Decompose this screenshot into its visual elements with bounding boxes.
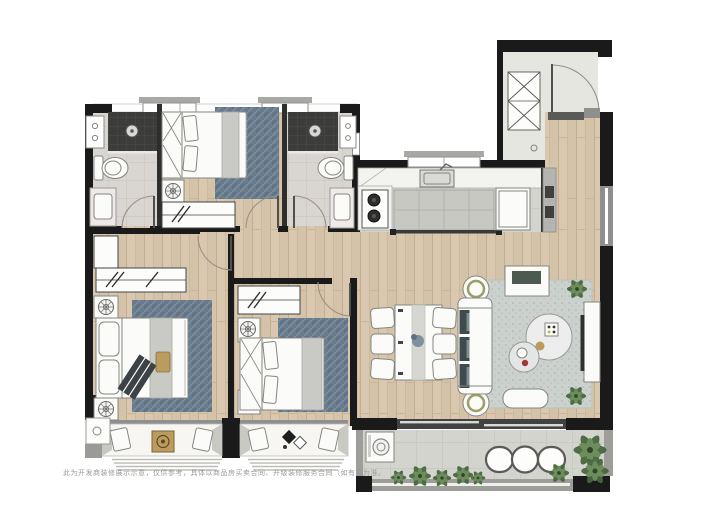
bedroom-2-wardrobe <box>238 286 300 314</box>
bedroom-3-bed <box>162 112 246 178</box>
cushion <box>110 427 131 451</box>
balcony-sliding-door <box>397 419 566 429</box>
toilet-1 <box>94 156 128 180</box>
master-bed <box>96 318 188 398</box>
bedroom-2-bed <box>240 338 324 410</box>
built-in-oven-icon <box>545 206 554 218</box>
cushion <box>318 428 339 452</box>
shoe-closet <box>508 72 540 130</box>
tv <box>581 315 585 371</box>
dining-chair <box>370 307 394 329</box>
pillow <box>183 146 198 172</box>
balcony-poufs <box>486 447 565 473</box>
disclaimer-text: 此为开发商装修展示示意，仅供参考，具体以商品房买卖合同、升级装修服务合同（如有）… <box>63 468 386 478</box>
built-in-oven-icon <box>545 186 554 198</box>
bench-bottom <box>503 389 548 408</box>
master-nightstand-top <box>94 296 118 318</box>
vanity-2 <box>330 188 354 228</box>
pillow <box>263 341 279 369</box>
bathroom-1-window <box>86 116 104 148</box>
dining-chair <box>432 358 456 380</box>
cushion <box>192 428 213 452</box>
master-nightstand-bottom <box>94 398 118 420</box>
tall-cabinet <box>541 168 556 232</box>
side-table <box>509 342 539 372</box>
toilet-2 <box>318 156 353 180</box>
bed-pillow-gold <box>156 352 170 372</box>
pouf <box>486 447 513 472</box>
bedroom-3-nightstand <box>162 180 184 202</box>
washing-machine <box>366 432 394 462</box>
cushion <box>248 427 269 451</box>
fridge <box>496 188 530 230</box>
kitchen <box>358 164 556 235</box>
dining-chair <box>370 358 394 380</box>
bay-window-2 <box>240 424 348 470</box>
dining-chair <box>432 307 456 329</box>
dining-chair <box>371 334 394 354</box>
vanity-1 <box>90 188 116 226</box>
pillow <box>183 115 199 141</box>
bay-window-1 <box>102 424 222 470</box>
console-bench-top <box>505 266 549 296</box>
floor-plan-render: 此为开发商装修展示示意，仅供参考，具体以商品房买卖合同、升级装修服务合同（如有）… <box>0 0 701 506</box>
sofa <box>458 298 492 394</box>
stove <box>362 190 388 228</box>
bay-decor-tray <box>152 431 174 452</box>
pillow <box>263 376 278 404</box>
dining-chair <box>433 334 456 354</box>
pouf <box>512 447 538 473</box>
bathroom-2-window <box>340 116 356 148</box>
entry-doormat <box>548 112 584 120</box>
bedroom-3-wardrobe <box>162 202 235 228</box>
